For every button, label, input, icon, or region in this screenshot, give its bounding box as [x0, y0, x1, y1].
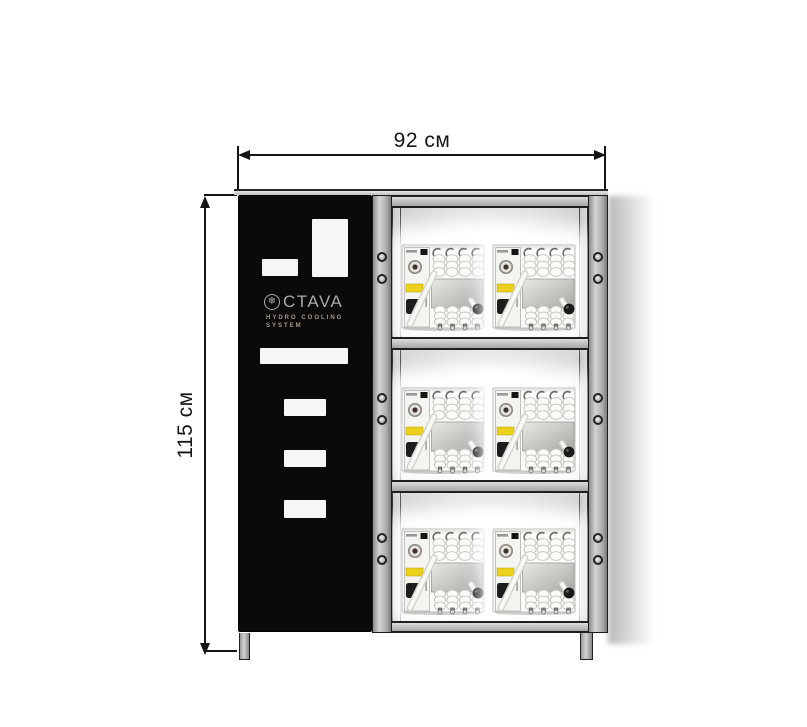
- screw-icon: [377, 274, 387, 284]
- width-dimension-label: 92 см: [372, 129, 472, 153]
- inner-rail: [393, 493, 401, 621]
- panel-cutout: [284, 399, 326, 416]
- extension-line: [204, 194, 237, 196]
- cooling-unit: [401, 527, 485, 615]
- drop-shadow: [608, 196, 654, 644]
- arrow-up-icon: [200, 196, 210, 208]
- inner-rail: [579, 208, 587, 337]
- panel-cutout: [284, 500, 326, 518]
- cooling-unit: [492, 386, 576, 474]
- extension-line: [237, 146, 239, 191]
- shelf-divider: [373, 480, 607, 493]
- cooling-unit-graphic: [492, 386, 576, 474]
- cooling-unit: [492, 243, 576, 331]
- height-dimension-line: [204, 206, 206, 643]
- screw-icon: [593, 533, 603, 543]
- cooling-unit: [401, 386, 485, 474]
- inner-rail: [579, 350, 587, 480]
- cooling-unit-graphic: [492, 527, 576, 615]
- screw-icon: [377, 252, 387, 262]
- product-diagram: 92 см 115 см ❄ CTAVA HYDRO COOLING SYSTE…: [0, 0, 807, 727]
- shelf-divider: [373, 337, 607, 350]
- panel-cutout: [284, 450, 326, 467]
- screw-icon: [377, 533, 387, 543]
- inner-rail: [393, 350, 401, 480]
- cabinet-leg-right: [580, 633, 593, 660]
- brand-name: CTAVA: [283, 292, 343, 312]
- width-dimension-line: [248, 154, 596, 156]
- brand-subtitle-line2: SYSTEM: [266, 323, 368, 329]
- screw-icon: [377, 415, 387, 425]
- cooling-unit-graphic: [401, 386, 485, 474]
- brand-logo: ❄ CTAVA HYDRO COOLING SYSTEM: [264, 292, 368, 329]
- inner-rail: [579, 493, 587, 621]
- screw-icon: [593, 252, 603, 262]
- arrow-left-icon: [238, 150, 250, 160]
- screw-icon: [593, 555, 603, 565]
- brand-subtitle-line1: HYDRO COOLING: [266, 315, 368, 321]
- screw-icon: [593, 393, 603, 403]
- panel-cutout: [262, 259, 298, 276]
- snowflake-icon: ❄: [264, 294, 280, 310]
- cabinet-leg-left: [239, 633, 250, 660]
- cooling-unit-graphic: [401, 243, 485, 331]
- cooling-unit: [492, 527, 576, 615]
- screw-icon: [593, 274, 603, 284]
- screw-icon: [377, 555, 387, 565]
- cooling-unit-graphic: [401, 527, 485, 615]
- inner-rail: [393, 208, 401, 337]
- height-dimension-label: 115 см: [174, 370, 198, 480]
- cooling-unit: [401, 243, 485, 331]
- extension-line: [604, 146, 606, 191]
- panel-cutout: [260, 348, 348, 364]
- cooling-unit-graphic: [492, 243, 576, 331]
- rack-bottom-bar: [373, 621, 607, 633]
- screw-icon: [593, 415, 603, 425]
- extension-line: [204, 650, 237, 652]
- screw-icon: [377, 393, 387, 403]
- arrow-down-icon: [200, 643, 210, 655]
- panel-cutout: [312, 219, 348, 277]
- rack-top-bar: [373, 195, 607, 208]
- brand-row: ❄ CTAVA: [264, 292, 368, 312]
